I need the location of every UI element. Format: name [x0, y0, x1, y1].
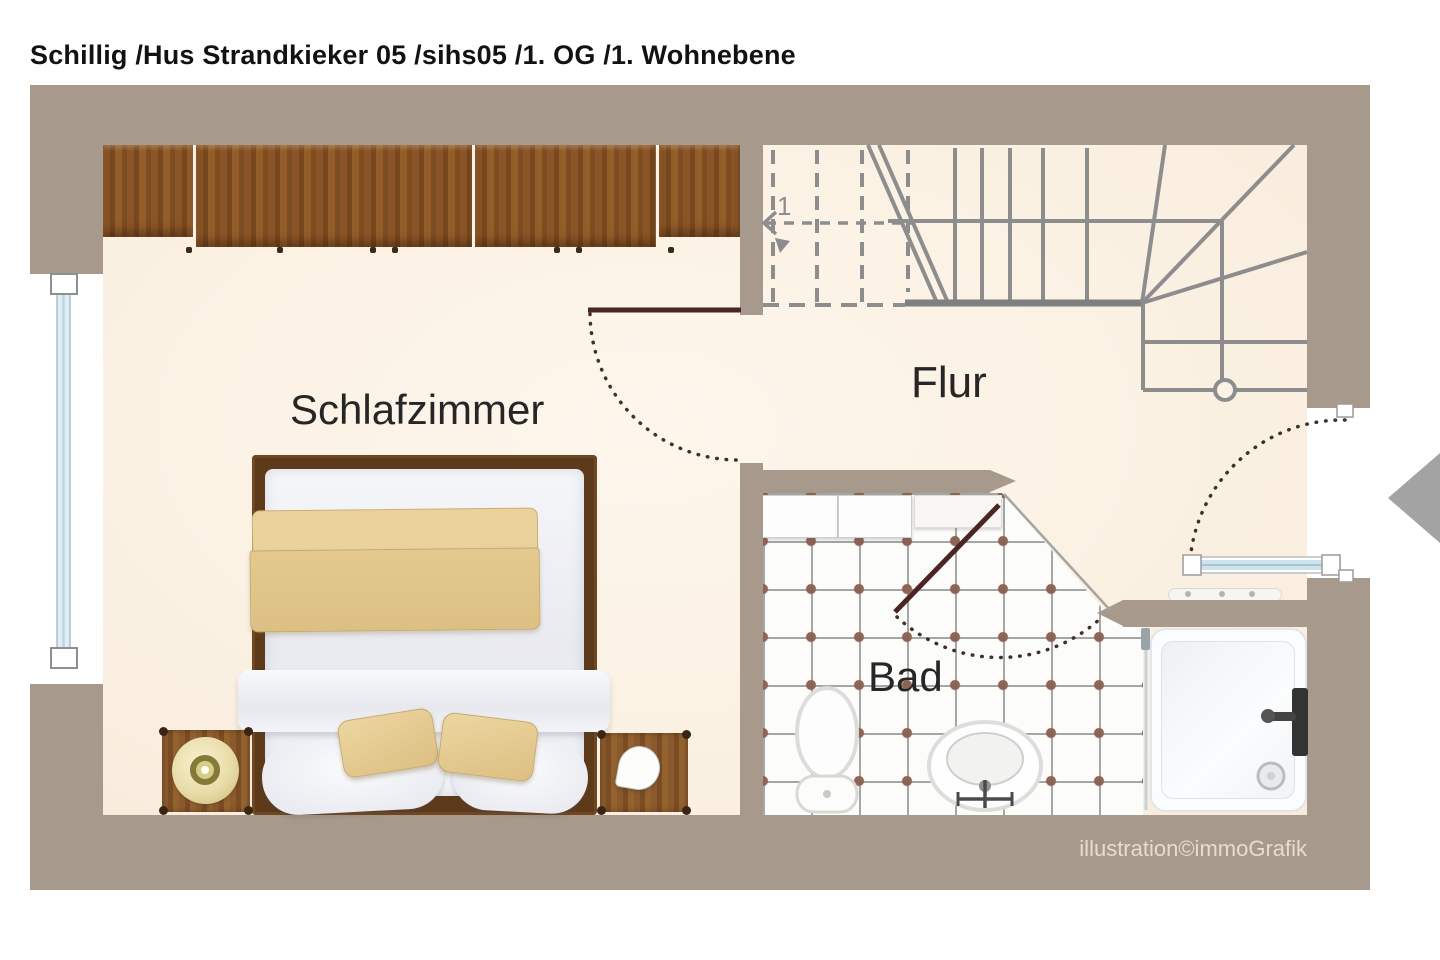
- room-label-bathroom: Bad: [868, 653, 943, 701]
- wall-top: [30, 85, 1370, 145]
- bed-blanket: [250, 547, 541, 632]
- wardrobe-handle: [277, 247, 283, 253]
- room-label-bedroom: Schlafzimmer: [290, 386, 544, 434]
- wardrobe-handle: [392, 247, 398, 253]
- wardrobe-handle: [370, 247, 376, 253]
- page-title: Schillig /Hus Strandkieker 05 /sihs05 /1…: [30, 40, 796, 71]
- bathtub-basin: [1161, 641, 1295, 799]
- wardrobe-segment-1: [103, 145, 193, 237]
- pillow-beige-right: [437, 711, 540, 782]
- wall-bath-top-tip: [990, 470, 1016, 492]
- bath-shelf: [914, 495, 1002, 528]
- window-recess: [30, 274, 103, 684]
- bath-cabinet-left-door: [760, 495, 838, 538]
- room-label-hallway: Flur: [911, 358, 987, 408]
- wardrobe-handle: [554, 247, 560, 253]
- wardrobe-segment-4: [659, 145, 740, 237]
- wall-right-upper: [1307, 85, 1370, 408]
- wall-bedroom-hall-upper: [740, 145, 763, 315]
- prev-arrow-icon[interactable]: [1388, 453, 1440, 543]
- wall-right-lower: [1307, 578, 1370, 890]
- bath-cabinet-right-door: [838, 495, 912, 538]
- illustration-credit: illustration©immoGrafik: [1020, 836, 1307, 862]
- wall-bath-top: [740, 470, 990, 493]
- wardrobe-segment-3: [475, 145, 656, 247]
- wardrobe-handle: [576, 247, 582, 253]
- wardrobe-segment-2: [196, 145, 472, 247]
- wardrobe-handle: [668, 247, 674, 253]
- alarm-clock-center: [201, 766, 209, 774]
- wall-bath-right: [1123, 600, 1307, 627]
- wall-bedroom-bath: [740, 463, 763, 815]
- floorplan-page: Schillig /Hus Strandkieker 05 /sihs05 /1…: [0, 0, 1440, 960]
- wall-bath-right-tip: [1097, 600, 1123, 626]
- wardrobe-handle: [186, 247, 192, 253]
